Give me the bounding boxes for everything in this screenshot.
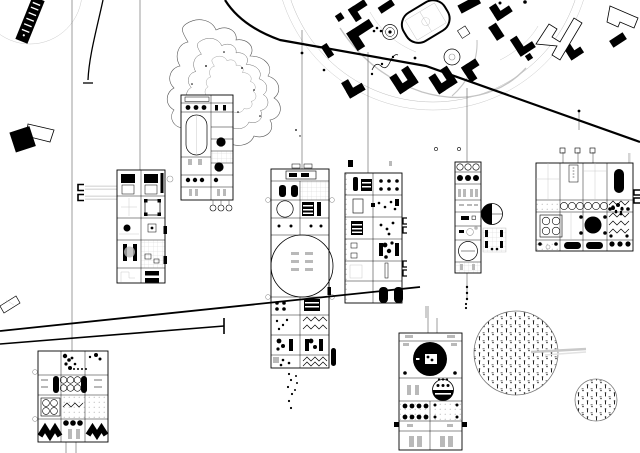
floorplan-strip-p7 — [33, 351, 108, 442]
pie-circle — [482, 204, 503, 225]
floorplan-strip-p4 — [345, 173, 407, 303]
road-b-short — [0, 326, 224, 344]
tree-circle-fill — [474, 311, 558, 395]
floorplan-strip-p3 — [266, 169, 336, 409]
angled-tower-topleft — [15, 0, 44, 44]
floorplan-strip-p8 — [394, 333, 467, 450]
curved-drop-line — [88, 0, 103, 80]
mini-grid — [483, 228, 506, 252]
floorplan-strip-p5 — [455, 162, 506, 273]
campus-round-features — [371, 25, 470, 76]
rotated-square-marker-left — [9, 124, 54, 153]
floorplan-square-p6 — [536, 163, 633, 251]
drawing-canvas — [0, 0, 640, 453]
bracket-band-glyphs — [78, 185, 117, 201]
road-b-long — [0, 287, 420, 331]
masterplan-drawing — [0, 0, 640, 453]
sports-field — [397, 0, 455, 48]
floorplan-strip-p2 — [181, 95, 233, 211]
tree-circles — [474, 311, 617, 421]
floorplan-strip-p1 — [117, 170, 173, 283]
corner-road-stub — [0, 296, 20, 313]
